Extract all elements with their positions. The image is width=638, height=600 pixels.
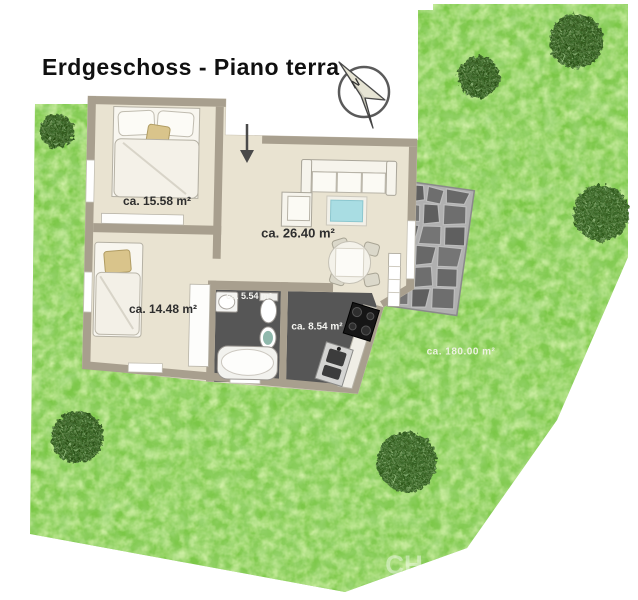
armchair: [281, 192, 312, 227]
double-bed: [112, 107, 200, 199]
kitchen-area-label: ca. 8.54 m²: [291, 322, 342, 333]
house-plan: [82, 96, 418, 395]
threshold-bedroom2: [128, 363, 162, 373]
bedroom2-area-label: ca. 14.48 m²: [129, 302, 197, 316]
coffee-table: [326, 196, 367, 226]
watermark-text: CH: [385, 550, 423, 581]
single-bed: [93, 242, 143, 337]
garden-tree: [549, 14, 603, 68]
garden-tree: [377, 432, 437, 492]
floorplan-page: N Erdgeschoss - Piano terra ca. 15.58 m²…: [0, 0, 638, 600]
compass-rose: N: [339, 62, 389, 128]
garden-tree: [458, 56, 500, 98]
wardrobe-bedroom2: [188, 284, 210, 366]
garden-area-label: ca. 180.00 m²: [427, 347, 496, 358]
site-plan-graphic: N: [0, 0, 638, 600]
bathtub: [217, 346, 278, 380]
bedroom1-area-label: ca. 15.58 m²: [123, 194, 191, 208]
window-bedroom2: [83, 272, 92, 312]
window-living: [406, 221, 415, 279]
page-title: Erdgeschoss - Piano terra: [42, 54, 340, 81]
bidet: [260, 327, 276, 349]
garden-tree: [51, 411, 103, 463]
glass-door: [388, 253, 401, 306]
sofa: [301, 159, 397, 195]
wardrobe-bedroom1: [101, 213, 183, 225]
living-area-label: ca. 26.40 m²: [261, 226, 335, 241]
garden-tree: [573, 185, 629, 241]
bathroom-area-label: ca. 5.54 m²: [226, 291, 272, 301]
garden-tree: [40, 114, 74, 148]
window-bedroom1: [86, 160, 95, 202]
